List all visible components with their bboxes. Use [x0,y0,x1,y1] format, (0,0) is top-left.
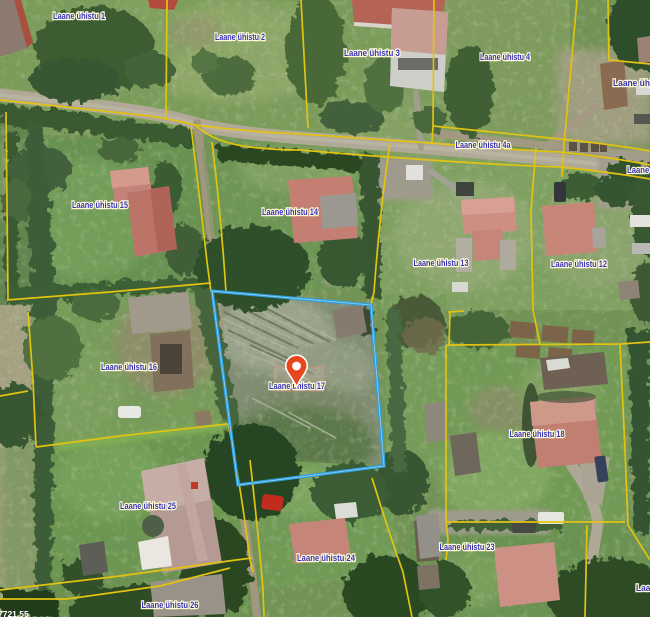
svg-text:Laane ühistu 3: Laane ühistu 3 [344,48,400,58]
svg-text:Laane ühistu 2: Laane ühistu 2 [215,32,265,42]
svg-text:Laane ühis: Laane ühis [613,78,650,88]
svg-text:Laane ühistu 24: Laane ühistu 24 [297,553,355,563]
svg-text:Laane: Laane [636,583,650,593]
svg-text:Laane ühistu 14: Laane ühistu 14 [262,207,318,217]
svg-text:Laane ühistu 26: Laane ühistu 26 [142,600,199,610]
svg-text:Laane ühistu 23: Laane ühistu 23 [440,542,495,552]
svg-text:Laane ühistu 16: Laane ühistu 16 [101,362,157,372]
svg-text:Laane ühistu 1: Laane ühistu 1 [53,11,105,21]
svg-text:Laane ühistu 15: Laane ühistu 15 [72,200,128,210]
svg-text:Laane ühistu 25: Laane ühistu 25 [120,501,176,511]
svg-text:Laane ühi: Laane ühi [627,165,650,175]
svg-text:7721.55: 7721.55 [0,609,29,617]
svg-text:Laane ühistu 12: Laane ühistu 12 [551,259,607,269]
svg-text:Laane ühistu 4: Laane ühistu 4 [480,52,530,62]
svg-text:Laane ühistu 18: Laane ühistu 18 [510,429,565,439]
svg-text:Laane ühistu 13: Laane ühistu 13 [414,258,469,268]
svg-text:Laane ühistu 4a: Laane ühistu 4a [456,140,512,150]
